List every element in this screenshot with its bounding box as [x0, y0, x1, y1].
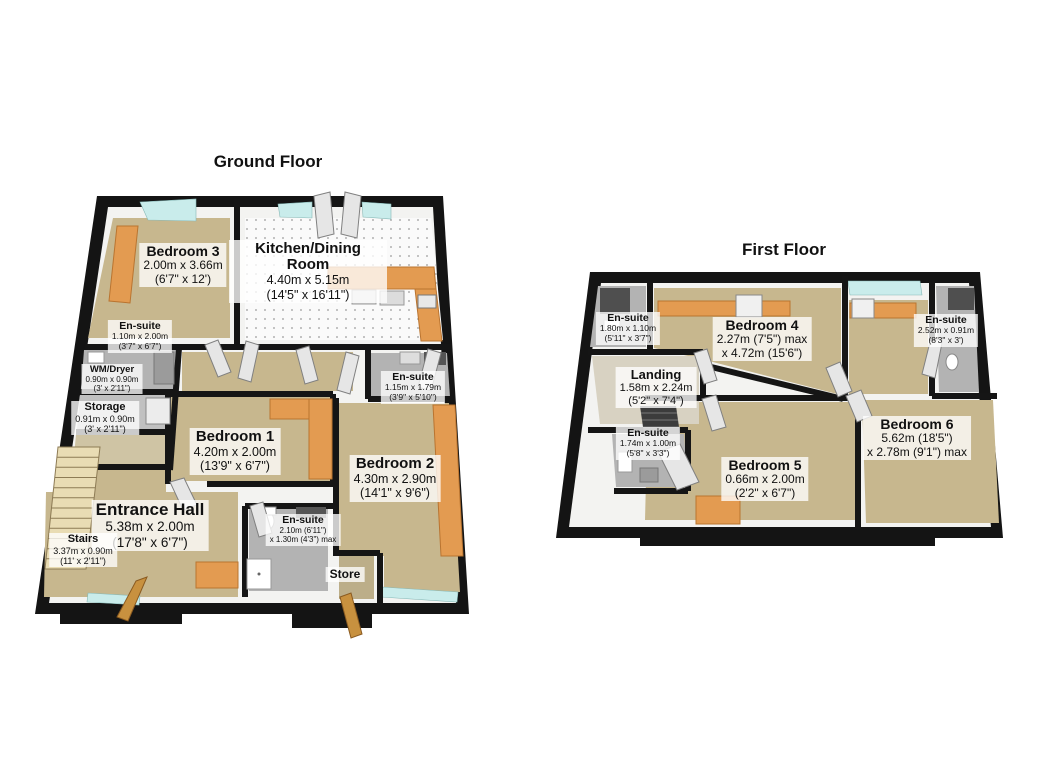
patio-door-leaf — [314, 192, 334, 238]
room-label-ensuite-left: En-suite 1.10m x 2.00m (3'7" x 6'7") — [108, 320, 172, 353]
floorplan-canvas: Ground Floor First Floor Bedroom 3 2.00m… — [0, 0, 1055, 767]
room-label-bedroom-3: Bedroom 3 2.00m x 3.66m (6'7" x 12') — [139, 243, 226, 287]
kitchen-window-right — [362, 202, 391, 219]
room-label-bedroom-4: Bedroom 4 2.27m (7'5") max x 4.72m (15'6… — [713, 317, 812, 361]
first-floor-window — [848, 281, 922, 295]
room-label-stairs: Stairs 3.37m x 0.90m (11' x 2'11") — [49, 533, 117, 567]
room-label-landing: Landing 1.58m x 2.24m (5'2" x 7'4") — [616, 367, 697, 408]
hall-sideboard — [196, 562, 238, 588]
bedroom-3-window — [140, 199, 196, 221]
first-bottom-stub — [640, 528, 935, 546]
room-label-ensuite-right: En-suite 1.15m x 1.79m (3'9" x 5'10") — [381, 371, 445, 404]
ensuite-bottom-left-toilet — [640, 468, 658, 482]
room-label-storage: Storage 0.91m x 0.90m (3' x 2'11") — [71, 401, 139, 435]
ensuite-top-right-toilet — [946, 354, 958, 370]
bedroom-1-wardrobe — [309, 399, 332, 479]
room-label-bedroom-2: Bedroom 2 4.30m x 2.90m (14'1" x 9'6") — [350, 455, 441, 502]
bedroom-6-sink — [852, 299, 874, 318]
washing-machine — [146, 398, 170, 424]
room-label-bedroom-6: Bedroom 6 5.62m (18'5") x 2.78m (9'1") m… — [863, 416, 971, 460]
room-label-wm-dryer: WM/Dryer 0.90m x 0.90m (3' x 2'11") — [82, 364, 143, 394]
corridor-floor — [182, 352, 353, 391]
ensuite-left-shower — [154, 352, 174, 384]
kitchen-sink — [418, 295, 436, 308]
room-label-bedroom-1: Bedroom 1 4.20m x 2.00m (13'9" x 6'7") — [190, 428, 281, 475]
room-label-ensuite-bottom: En-suite 2.10m (6'11") x 1.30m (4'3") ma… — [266, 514, 341, 546]
room-label-ensuite-top-left: En-suite 1.80m x 1.10m (5'11" x 3'7") — [596, 312, 660, 345]
room-label-kitchen-dining: Kitchen/Dining Room 4.40m x 5.15m (14'5"… — [229, 240, 387, 303]
kitchen-window-left — [278, 202, 312, 218]
room-label-ensuite-bottom-left: En-suite 1.74m x 1.00m (5'8" x 3'3") — [616, 427, 680, 460]
ensuite-left-sink — [88, 352, 104, 363]
bedroom-4-sink — [736, 295, 762, 317]
ensuite-top-right-shower — [948, 288, 974, 310]
bedroom-4-shelf — [658, 301, 790, 316]
patio-door-leaf — [341, 192, 361, 238]
room-label-store: Store — [326, 567, 365, 582]
room-label-ensuite-top-right: En-suite 2.52m x 0.91m (8'3" x 3') — [914, 314, 978, 347]
room-label-bedroom-5: Bedroom 5 0.66m x 2.00m (2'2" x 6'7") — [721, 457, 808, 501]
shower-drain — [258, 573, 261, 576]
ensuite-top-left-shower — [600, 288, 630, 314]
floorplan-graphics — [0, 0, 1055, 767]
ensuite-right-sink — [400, 352, 420, 364]
ground-floor-title: Ground Floor — [214, 152, 323, 172]
first-floor-title: First Floor — [742, 240, 826, 260]
